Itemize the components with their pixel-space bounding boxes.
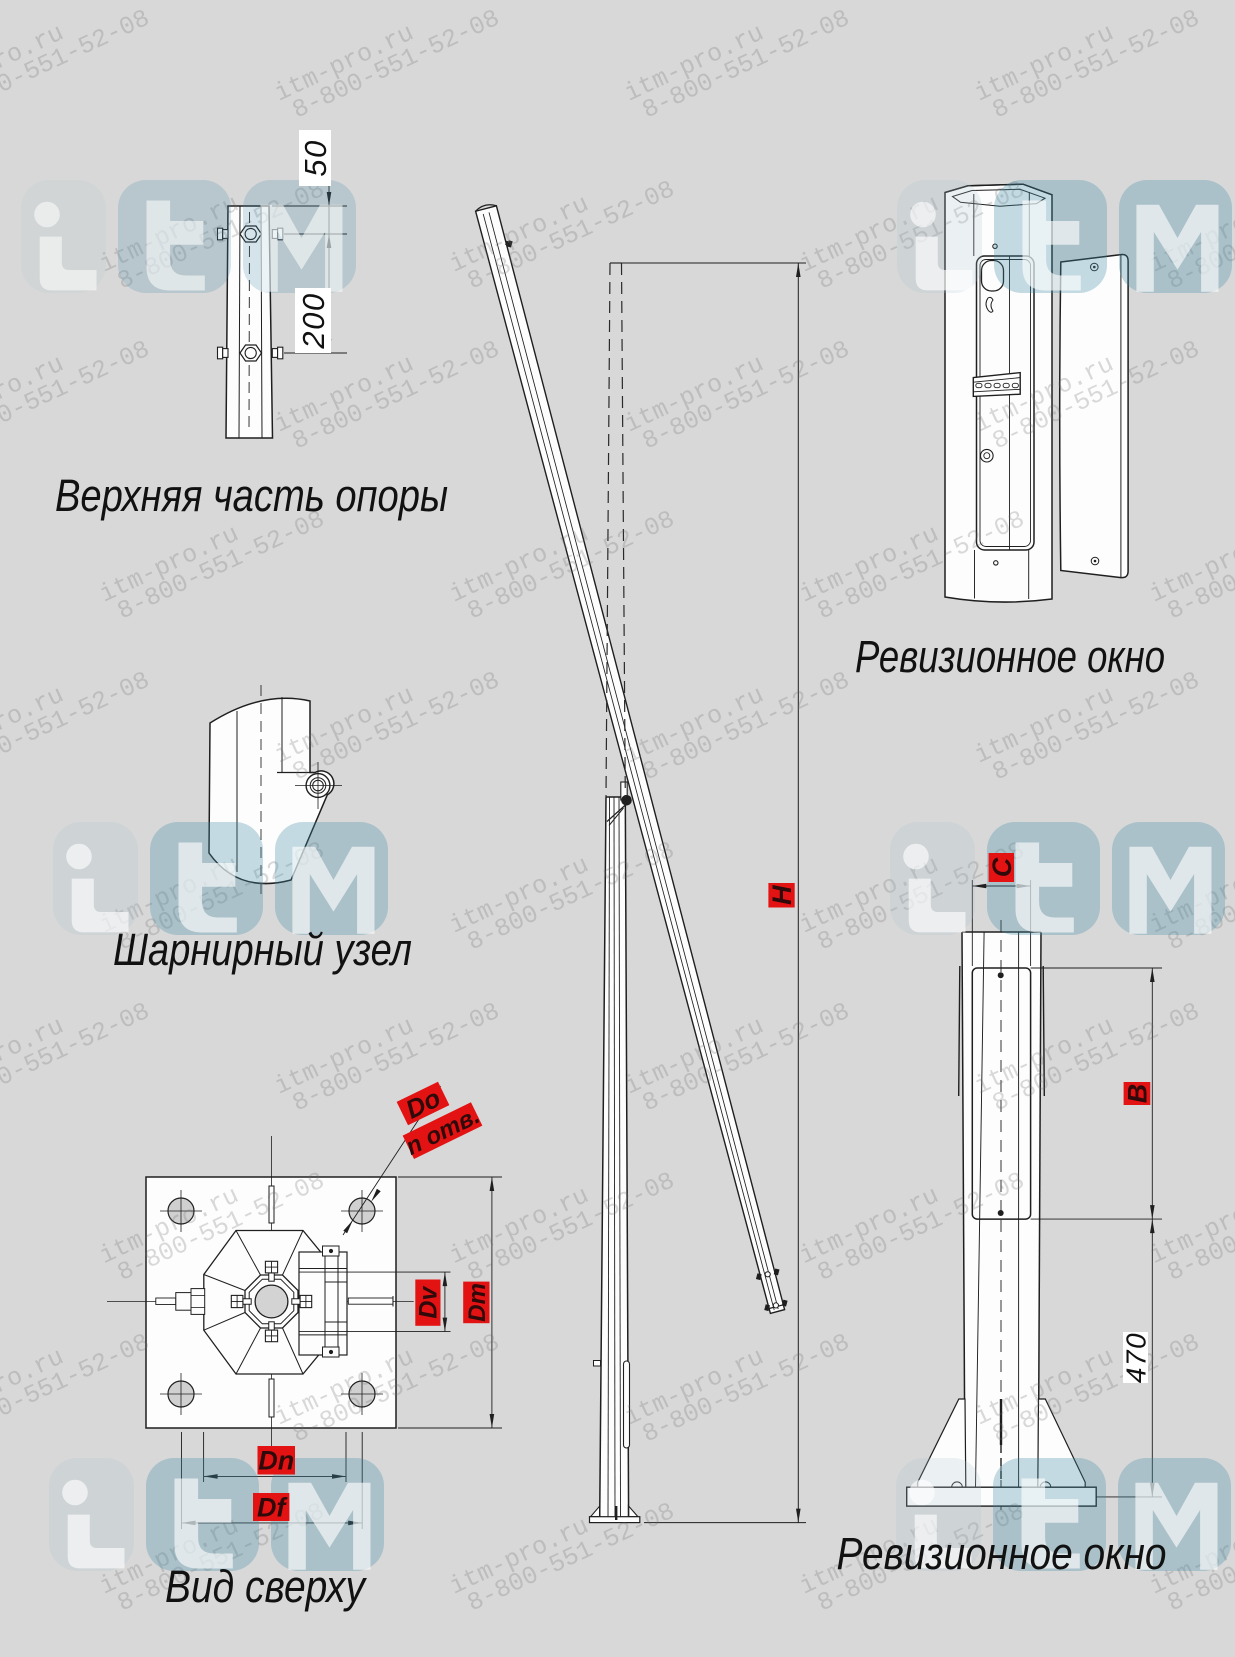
svg-text:C: C	[987, 857, 1017, 877]
svg-text:Вид сверху: Вид сверху	[165, 1561, 367, 1612]
svg-text:Dm: Dm	[464, 1283, 491, 1322]
svg-text:470: 470	[1120, 1332, 1151, 1383]
svg-text:Dn: Dn	[258, 1446, 294, 1476]
svg-text:Шарнирный узел: Шарнирный узел	[113, 924, 412, 975]
svg-text:Dv: Dv	[415, 1285, 443, 1319]
svg-text:200: 200	[296, 292, 331, 349]
svg-text:50: 50	[298, 139, 333, 176]
svg-text:B: B	[1122, 1084, 1152, 1104]
svg-text:H: H	[767, 885, 797, 905]
svg-text:Ревизионное окно: Ревизионное окно	[855, 631, 1165, 682]
svg-text:Верхняя часть опоры: Верхняя часть опоры	[55, 470, 448, 521]
svg-text:Df: Df	[257, 1492, 288, 1522]
svg-text:Ревизионное окно: Ревизионное окно	[837, 1528, 1167, 1579]
